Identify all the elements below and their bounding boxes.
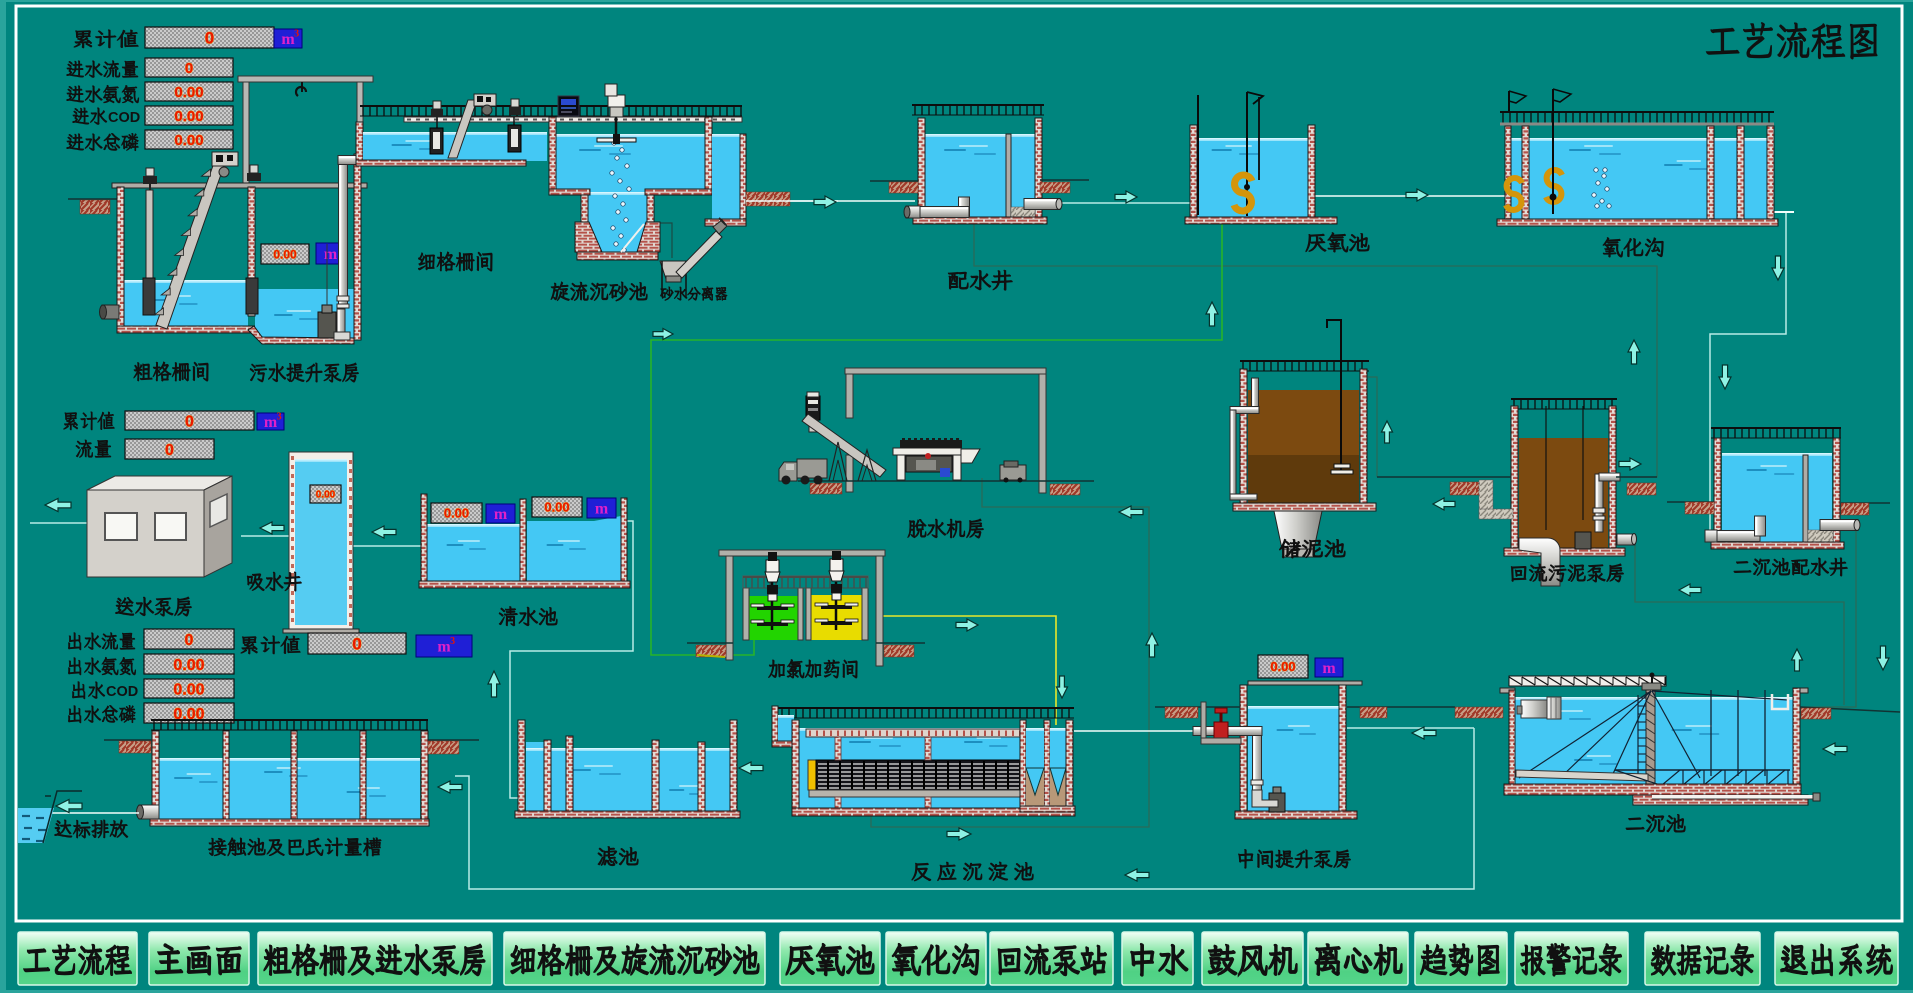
svg-text:m: m bbox=[595, 500, 609, 517]
svg-text:0: 0 bbox=[185, 632, 194, 649]
svg-text:0.00: 0.00 bbox=[316, 490, 336, 501]
svg-text:0: 0 bbox=[352, 635, 361, 654]
svg-text:3: 3 bbox=[450, 636, 455, 647]
svg-text:3: 3 bbox=[294, 29, 299, 40]
svg-text:0.00: 0.00 bbox=[173, 681, 204, 698]
svg-text:COD: COD bbox=[108, 110, 140, 126]
svg-text:m: m bbox=[1322, 660, 1336, 677]
svg-text:0.00: 0.00 bbox=[174, 132, 203, 149]
svg-text:m: m bbox=[324, 246, 338, 263]
svg-text:0.00: 0.00 bbox=[174, 108, 203, 125]
svg-text:0: 0 bbox=[165, 442, 174, 459]
svg-text:3: 3 bbox=[277, 412, 282, 423]
svg-text:0.00: 0.00 bbox=[174, 84, 203, 101]
svg-text:0.00: 0.00 bbox=[273, 247, 297, 261]
svg-text:0: 0 bbox=[205, 29, 214, 48]
svg-text:0.00: 0.00 bbox=[444, 506, 469, 521]
svg-text:0: 0 bbox=[185, 60, 193, 77]
svg-text:0.00: 0.00 bbox=[1270, 659, 1295, 674]
svg-text:COD: COD bbox=[106, 684, 138, 700]
svg-text:m: m bbox=[494, 506, 508, 523]
svg-text:0.00: 0.00 bbox=[544, 500, 569, 515]
svg-text:0: 0 bbox=[185, 413, 194, 430]
svg-text:0.00: 0.00 bbox=[173, 657, 204, 674]
